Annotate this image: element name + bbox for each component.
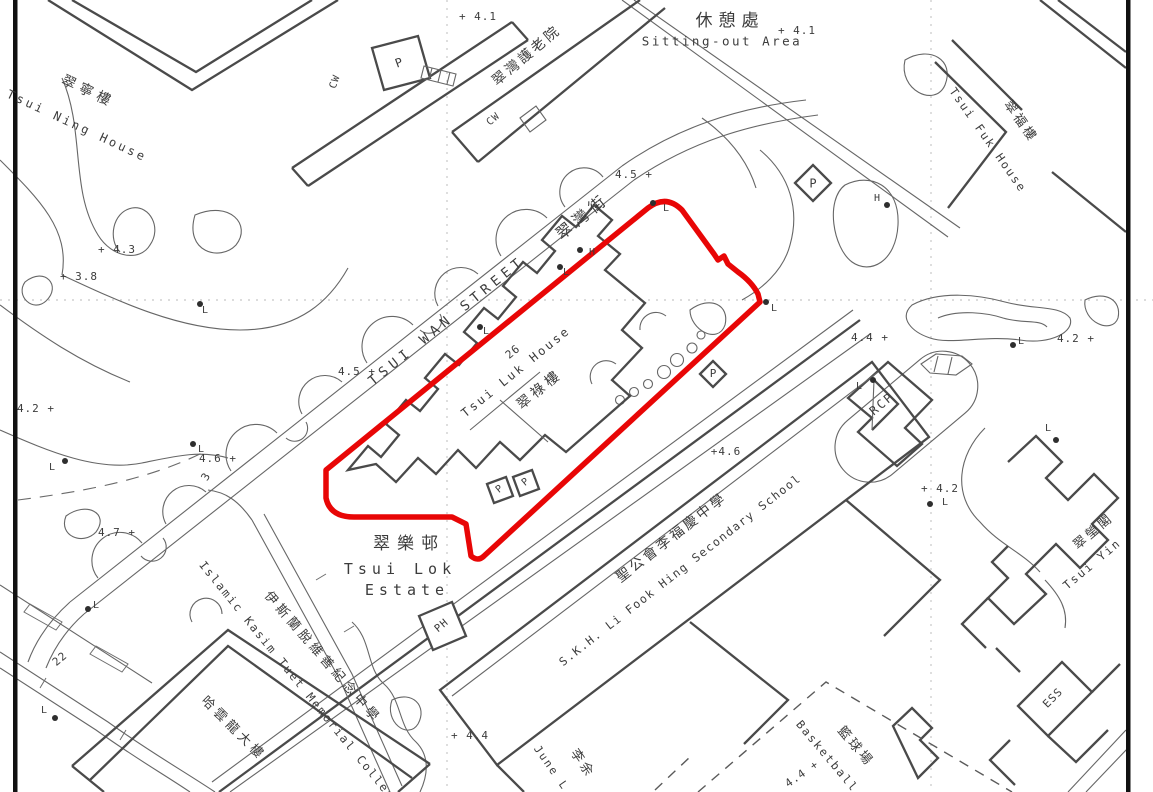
grid-lines	[0, 0, 1153, 792]
site-boundary	[326, 201, 760, 559]
building-ph	[419, 602, 466, 650]
map-frame	[13, 0, 1131, 792]
garden-shapes	[590, 54, 1118, 404]
building-pavilion	[795, 165, 831, 201]
building-parking-booth	[700, 361, 726, 387]
road-lines	[0, 0, 1128, 792]
building-islamic-college	[72, 598, 430, 792]
gate-symbol	[90, 646, 128, 672]
planter-boat	[921, 354, 972, 375]
school-boundary-wall	[219, 320, 860, 792]
building-parking-booth	[487, 477, 513, 503]
gate-symbol	[24, 604, 62, 630]
building-tsui-ying-court	[962, 436, 1120, 785]
street-lines	[28, 100, 818, 668]
building-rcp	[848, 362, 932, 466]
map-linework	[0, 0, 1153, 792]
building-tsui-ning-house	[48, 0, 338, 90]
building-parking-booth	[513, 470, 539, 496]
map-viewport[interactable]: 休憩處Sitting-out Area+ 4.1+ 4.1翠寧樓Tsui Nin…	[0, 0, 1153, 792]
building-ess	[1018, 662, 1092, 736]
building-tsui-fuk-house	[935, 0, 1126, 232]
buildings-layer	[48, 0, 1126, 792]
basketball-court	[655, 682, 1012, 792]
building-l-shaped	[893, 708, 938, 778]
landscape-paths	[0, 78, 426, 792]
